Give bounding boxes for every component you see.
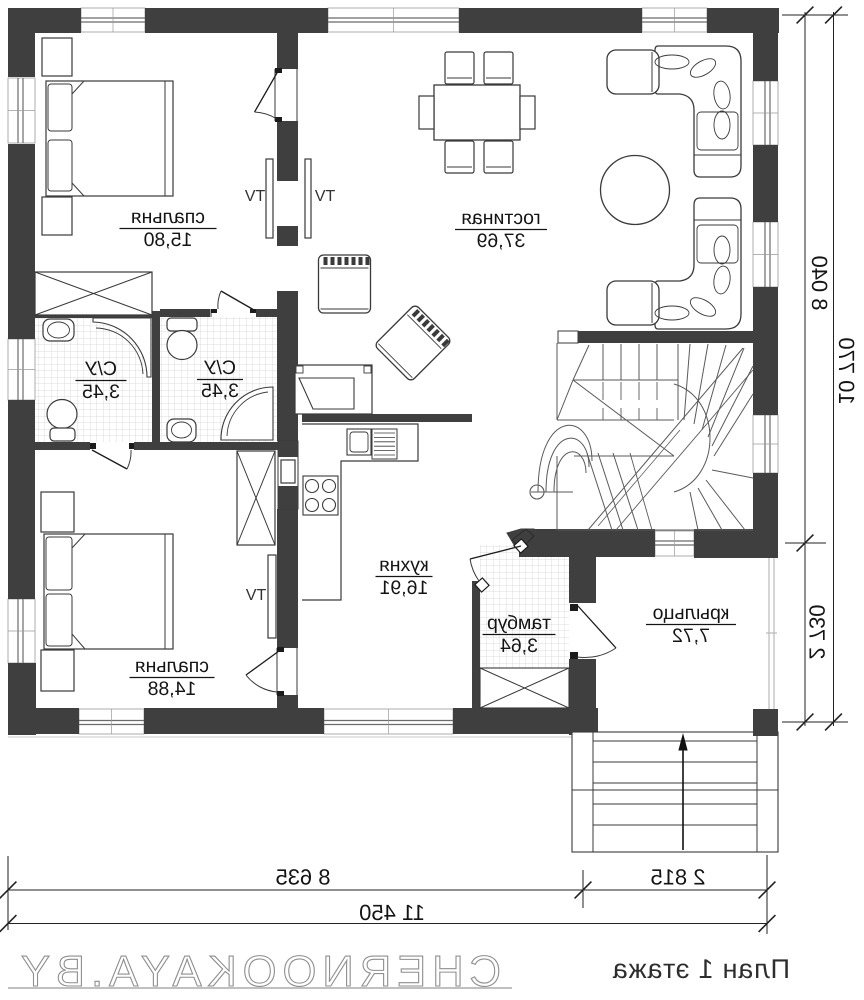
svg-text:тамбур: тамбур — [487, 612, 551, 634]
svg-text:8 040: 8 040 — [807, 255, 832, 310]
svg-text:16,91: 16,91 — [380, 577, 429, 599]
svg-text:8 635: 8 635 — [275, 865, 330, 890]
svg-text:2 730: 2 730 — [805, 604, 830, 659]
svg-text:CHERNOOKAYA.BY: CHERNOOKAYA.BY — [15, 948, 501, 996]
svg-text:План 1 этажа: План 1 этажа — [612, 954, 790, 984]
svg-text:гостиная: гостиная — [461, 207, 540, 229]
svg-text:11 450: 11 450 — [359, 900, 425, 925]
svg-text:TV: TV — [244, 188, 265, 205]
svg-text:спальня: спальня — [131, 206, 205, 228]
svg-text:37,69: 37,69 — [477, 230, 526, 252]
svg-text:3,45: 3,45 — [201, 380, 239, 402]
svg-text:14,88: 14,88 — [148, 678, 197, 700]
svg-text:3,45: 3,45 — [82, 381, 120, 403]
svg-text:10 770: 10 770 — [834, 337, 859, 404]
svg-text:С/У: С/У — [203, 357, 236, 379]
svg-text:С/У: С/У — [84, 358, 117, 380]
svg-text:спальня: спальня — [135, 655, 209, 677]
svg-text:кухня: кухня — [379, 554, 429, 576]
svg-text:TV: TV — [245, 587, 266, 604]
svg-text:3,64: 3,64 — [500, 635, 538, 657]
svg-text:15,80: 15,80 — [143, 229, 192, 251]
svg-text:7,72: 7,72 — [672, 625, 710, 647]
svg-text:TV: TV — [314, 188, 335, 205]
svg-text:крыльцо: крыльцо — [652, 602, 729, 624]
svg-text:2 815: 2 815 — [650, 865, 705, 890]
